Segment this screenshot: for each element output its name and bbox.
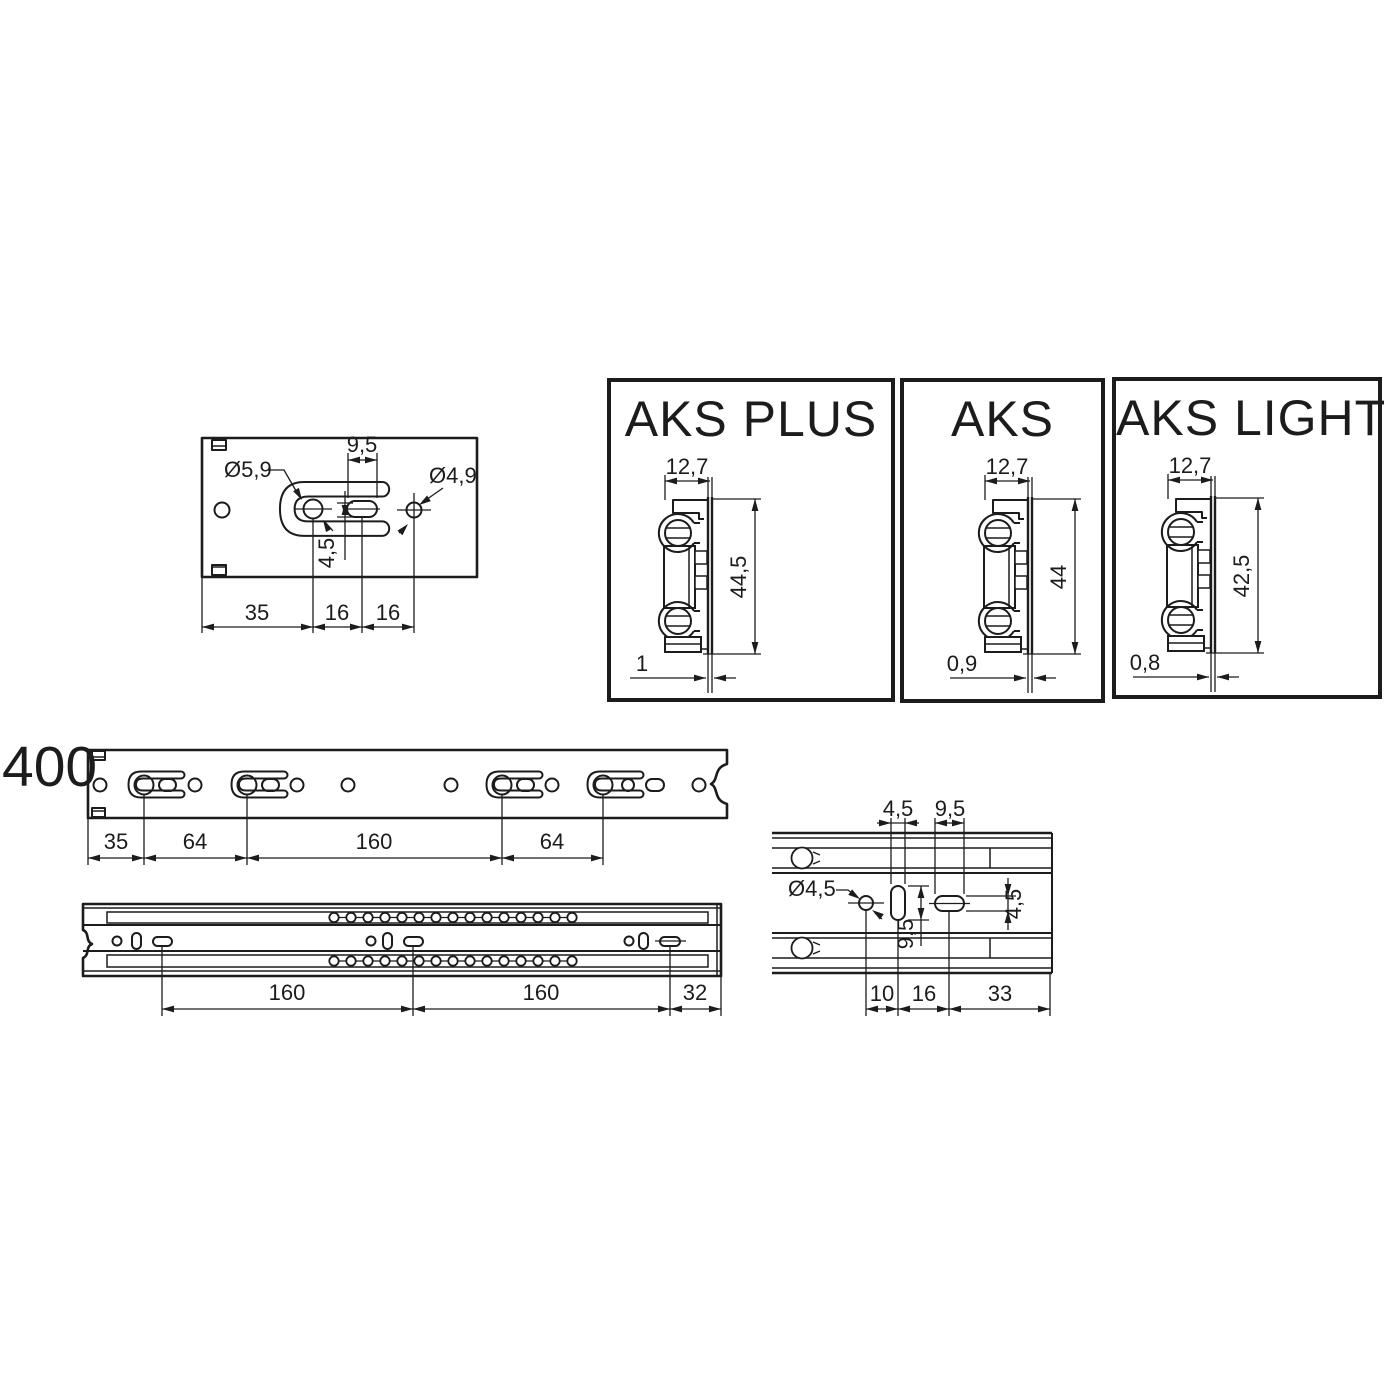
dim-slot-height: 4,5 [1001, 889, 1026, 920]
dim-profile-width: 12,7 [986, 454, 1029, 479]
dim-profile-wall: 0,8 [1130, 650, 1161, 675]
end-detail-dimensions: 4,5 9,5 Ø4,5 9,5 4,5 10 [788, 796, 1050, 1016]
dim-profile-width: 12,7 [666, 454, 709, 479]
end-detail-view: 4,5 9,5 Ø4,5 9,5 4,5 10 [760, 780, 1090, 1030]
technical-drawing-page: 9,5 Ø5,9 Ø4,9 4,5 35 16 [0, 0, 1400, 1400]
dim-slide-0: 160 [269, 980, 306, 1005]
profile-drawing-aks-light: 12,7 42,5 0,8 [1116, 381, 1378, 695]
dim-slide-1: 160 [523, 980, 560, 1005]
dim-profile-height: 42,5 [1229, 555, 1254, 598]
plate-dimensions: 9,5 Ø5,9 Ø4,9 4,5 35 16 [202, 432, 477, 633]
profile-card-aks-light: AKS LIGHT 12,7 42,5 0,8 [1112, 377, 1382, 699]
dim-rail-1: 64 [183, 829, 207, 854]
dim-hole-right: Ø4,9 [429, 463, 477, 488]
dim-profile-wall: 0,9 [947, 651, 978, 676]
dim-bottom-2: 33 [988, 981, 1012, 1006]
cabinet-rail-dimensions: 35 64 160 64 [88, 794, 603, 865]
profile-drawing-aks-plus: 12,7 44,5 1 [611, 382, 891, 698]
dim-bottom-2: 16 [376, 600, 400, 625]
dim-rail-2: 160 [356, 829, 393, 854]
dim-profile-wall: 1 [636, 651, 648, 676]
ball-retainer-top [329, 913, 576, 922]
dim-hole-left: Ø5,9 [224, 457, 272, 482]
dim-rail-3: 64 [540, 829, 564, 854]
rail-length-label: 400 [2, 735, 97, 799]
cabinet-rail-view: 400 [0, 730, 770, 875]
ball-retainer-bottom [329, 956, 576, 965]
dim-profile-width: 12,7 [1169, 453, 1212, 478]
dim-top-1: 9,5 [935, 796, 966, 821]
dim-profile-height: 44 [1046, 565, 1071, 589]
dim-bottom-0: 35 [245, 600, 269, 625]
dim-slide-2: 32 [683, 980, 707, 1005]
assembled-slide-view: 160 160 32 [70, 885, 770, 1020]
dim-bottom-0: 10 [870, 981, 894, 1006]
dim-profile-height: 44,5 [726, 556, 751, 599]
dim-bottom-1: 16 [912, 981, 936, 1006]
cabinet-rail-outline [88, 750, 727, 818]
profile-card-aks: AKS 12,7 44 0,9 [900, 378, 1105, 703]
dim-rail-0: 35 [104, 829, 128, 854]
profile-drawing-aks: 12,7 44 0,9 [904, 382, 1101, 699]
dim-top-0: 4,5 [883, 796, 914, 821]
dim-vertical-offset: 4,5 [314, 538, 339, 569]
assembled-slide-outline [83, 904, 721, 976]
dim-hole: Ø4,5 [788, 876, 836, 901]
dim-slot-width: 9,5 [347, 432, 378, 457]
assembled-slide-dimensions: 160 160 32 [162, 946, 721, 1016]
dim-slot-length: 9,5 [893, 919, 918, 950]
mounting-plate-detail: 9,5 Ø5,9 Ø4,9 4,5 35 16 [175, 425, 495, 650]
profile-card-aks-plus: AKS PLUS 12,7 44,5 1 [607, 378, 895, 702]
dim-bottom-1: 16 [325, 600, 349, 625]
